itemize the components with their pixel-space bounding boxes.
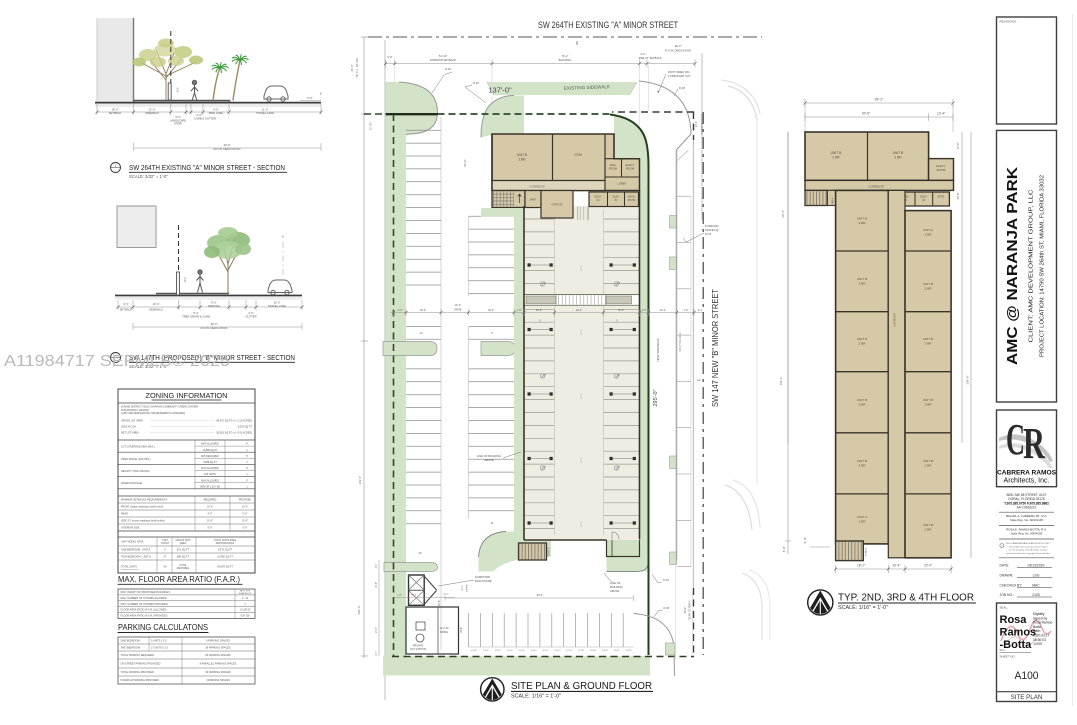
svg-text:ELECT.: ELECT.	[625, 163, 634, 167]
svg-text:MAX ALLOWED: MAX ALLOWED	[201, 443, 219, 446]
svg-text:10'-0": 10'-0"	[242, 520, 248, 523]
svg-text:MAX. NUMBER OF STORIES PROVIDE: MAX. NUMBER OF STORIES PROVIDED	[121, 603, 168, 606]
svg-text:60'-8": 60'-8"	[862, 112, 870, 116]
svg-text:R 20': R 20'	[445, 67, 452, 71]
svg-text:UNIT B: UNIT B	[923, 459, 933, 463]
svg-text:GYM: GYM	[574, 153, 582, 157]
svg-text:6'-0": 6'-0"	[123, 302, 128, 306]
svg-text:CORRIDOR: CORRIDOR	[868, 184, 883, 188]
svg-text:2 BR: 2 BR	[925, 463, 933, 467]
svg-text:22'-4": 22'-4"	[581, 457, 583, 463]
svg-text:SIDEWALK: SIDEWALK	[149, 308, 163, 312]
svg-text:63 PARKING SPACES: 63 PARKING SPACES	[205, 654, 231, 657]
svg-text:ROOM: ROOM	[628, 199, 636, 202]
svg-text:79'-2": 79'-2"	[562, 54, 569, 58]
svg-text:22'-0": 22'-0"	[438, 600, 441, 606]
svg-text:22'-0": 22'-0"	[576, 309, 582, 312]
svg-text:UNIT B: UNIT B	[857, 459, 867, 463]
svg-text:2100: 2100	[1032, 593, 1040, 597]
svg-text:11'-10": 11'-10"	[369, 122, 373, 130]
svg-text:13'-8": 13'-8"	[956, 142, 960, 149]
svg-text:TOTAL PARKING PROVIDED: TOTAL PARKING PROVIDED	[121, 671, 154, 674]
svg-text:7'-4": 7'-4"	[397, 595, 402, 597]
svg-text:Ramos: Ramos	[1000, 627, 1037, 639]
svg-text:FDOT INDEX 304: FDOT INDEX 304	[668, 70, 690, 74]
svg-text:DATE:: DATE:	[1000, 564, 1010, 568]
svg-text:A11984717 SEFMLS© 2025: A11984717 SEFMLS© 2025	[4, 353, 230, 370]
svg-text:BUILDING: BUILDING	[559, 58, 572, 62]
svg-text:REAR SETBACK: REAR SETBACK	[689, 600, 692, 620]
svg-text:CABRERA RAMOS: CABRERA RAMOS	[997, 470, 1057, 477]
svg-text:22'-8": 22'-8"	[618, 309, 624, 312]
svg-text:168'-8": 168'-8"	[966, 375, 970, 384]
svg-text:2 BR: 2 BR	[925, 527, 933, 531]
svg-text:UNIT A: UNIT A	[923, 228, 934, 232]
svg-text:are the property of the Archit: are the property of the Architect and ar…	[1009, 549, 1048, 552]
svg-text:22'-4": 22'-4"	[581, 329, 583, 335]
svg-text:FRONT (major roadways build-to: FRONT (major roadways build-to-line)	[121, 506, 163, 509]
svg-text:SEAL:: SEAL:	[1000, 606, 1009, 610]
svg-text:STOR.: STOR.	[937, 196, 945, 199]
svg-text:SITE PLAN & GROUND FLOOR: SITE PLAN & GROUND FLOOR	[511, 681, 652, 692]
svg-text:FLOOR AREA RATIO (F.A.R.) PROV: FLOOR AREA RATIO (F.A.R.) PROVIDED	[121, 615, 168, 618]
svg-text:2 BR: 2 BR	[859, 463, 867, 467]
svg-text:LOBBY: LOBBY	[617, 182, 626, 186]
svg-text:LESS R.O.W.: LESS R.O.W.	[121, 426, 136, 429]
svg-text:2 BR: 2 BR	[859, 221, 867, 225]
svg-text:10'-4": 10'-4"	[660, 309, 666, 312]
svg-text:16'-4": 16'-4"	[376, 582, 378, 588]
svg-text:10'-4": 10'-4"	[153, 302, 160, 306]
svg-text:10'-0": 10'-0"	[242, 506, 248, 509]
svg-text:UNIT B: UNIT B	[857, 398, 867, 402]
svg-text:BIKE LANE: BIKE LANE	[209, 111, 223, 115]
svg-text:ON-STREET PARKING PROVIDED: ON-STREET PARKING PROVIDED	[121, 663, 161, 666]
svg-text:36'-4": 36'-4"	[781, 210, 785, 218]
svg-text:UNIT B: UNIT B	[517, 153, 527, 157]
svg-text:5'-0": 5'-0"	[208, 527, 213, 530]
svg-text:protected under the Copyright: protected under the Copyright Protection…	[1006, 552, 1049, 555]
svg-text:8'-10": 8'-10"	[803, 537, 807, 544]
svg-text:OPEN SPACE (10% MIN.): OPEN SPACE (10% MIN.)	[121, 458, 151, 461]
svg-text:1'-0": 1'-0"	[517, 309, 522, 312]
svg-text:2 BR: 2 BR	[859, 341, 867, 345]
svg-text:24'-8": 24'-8"	[705, 232, 712, 236]
svg-text:10'-0": 10'-0"	[207, 520, 213, 523]
svg-text:TWO BEDROOM - UNIT B: TWO BEDROOM - UNIT B	[121, 556, 151, 559]
svg-text:3,959 SQ.FT: 3,959 SQ.FT	[203, 461, 217, 464]
svg-text:9,079 SQ.FT: 9,079 SQ.FT	[238, 426, 253, 429]
svg-text:SCALE: 1/16" = 1'-0": SCALE: 1/16" = 1'-0"	[511, 693, 561, 699]
svg-text:63 PARKING SPACES: 63 PARKING SPACES	[205, 671, 231, 674]
svg-text:ROOM: ROOM	[609, 167, 618, 171]
svg-text:STAIR A: STAIR A	[831, 197, 834, 206]
svg-text:LSG: LSG	[1033, 573, 1040, 577]
svg-text:This Single Unit Drawings of t: This Single Unit Drawings of this Projec…	[1009, 545, 1048, 548]
svg-text:MAX. NUMBER OF STORIES ALLOWED: MAX. NUMBER OF STORIES ALLOWED	[121, 597, 167, 600]
svg-text:11'-0": 11'-0"	[262, 108, 269, 112]
svg-text:JOB NO.:: JOB NO.:	[1000, 593, 1015, 597]
svg-text:JANIT.: JANIT.	[529, 198, 537, 202]
svg-text:27 UNITS X 1.5: 27 UNITS X 1.5	[151, 647, 168, 650]
svg-text:Rosa: Rosa	[1000, 614, 1028, 626]
svg-text:UNIT B: UNIT B	[923, 398, 933, 402]
svg-text:ABOVE: ABOVE	[610, 589, 619, 593]
svg-text:93'-4": 93'-4"	[537, 593, 544, 597]
svg-text:DRIVE: DRIVE	[454, 308, 462, 311]
svg-text:8 PARKING: 8 PARKING	[705, 224, 719, 228]
svg-text:MAX. HEIGHT OF PROPOSED BUILDI: MAX. HEIGHT OF PROPOSED BUILDINGS	[121, 591, 171, 594]
svg-text:Architects, Inc.: Architects, Inc.	[1004, 478, 1050, 485]
svg-text:13'-4": 13'-4"	[937, 112, 945, 116]
svg-text:ZONING INFORMATION: ZONING INFORMATION	[146, 391, 228, 400]
svg-text:23'-0": 23'-0"	[376, 627, 378, 633]
svg-text:DRIVE: DRIVE	[440, 630, 448, 634]
svg-text:CURB & GUTTER: CURB & GUTTER	[194, 116, 216, 120]
svg-text:MINIMUM SETBACKS REQUIREMENTS: MINIMUM SETBACKS REQUIREMENTS	[121, 499, 167, 502]
svg-text:10'-0": 10'-0"	[207, 506, 213, 509]
svg-text:LINE OF: LINE OF	[610, 581, 621, 585]
svg-text:119'-4": 119'-4"	[358, 475, 362, 484]
svg-text:LOT COVERAGE (80% MAX.): LOT COVERAGE (80% MAX.)	[121, 446, 155, 449]
svg-text:4'-0": 4'-0"	[398, 309, 403, 312]
svg-text:34,678 SQ.FT: 34,678 SQ.FT	[217, 566, 233, 569]
svg-text:GROSS LOT AREA: GROSS LOT AREA	[121, 420, 143, 423]
svg-text:PROJECT LOCATION: 14790 SW 264: PROJECT LOCATION: 14790 SW 264th ST, MIA…	[1040, 175, 1046, 357]
svg-text:BUILDING: BUILDING	[610, 585, 623, 589]
svg-text:22'-4": 22'-4"	[581, 265, 583, 271]
svg-text:R: R	[1023, 419, 1046, 468]
svg-text:INTERIOR SIDE: INTERIOR SIDE	[121, 527, 140, 530]
svg-text:GUTTER: GUTTER	[245, 314, 256, 318]
svg-text:AREA: AREA	[180, 542, 187, 545]
svg-text:DENSITY (INCLUSIONS): DENSITY (INCLUSIONS)	[121, 470, 150, 473]
svg-text:ROOM: ROOM	[937, 168, 946, 172]
svg-text:LINE OF BUILDING: LINE OF BUILDING	[477, 454, 501, 458]
svg-text:STRIP: STRIP	[174, 122, 182, 126]
svg-text:ABOVE: ABOVE	[484, 458, 493, 462]
svg-text:4 PARKING SPACES: 4 PARKING SPACES	[206, 679, 230, 682]
svg-text:SW 264TH EXISTING "A" MINOR ST: SW 264TH EXISTING "A" MINOR STREET - SEC…	[129, 163, 285, 172]
svg-text:ℓ: ℓ	[576, 41, 578, 47]
svg-text:119'-4": 119'-4"	[779, 377, 783, 385]
svg-text:UNIT B: UNIT B	[893, 151, 905, 155]
svg-text:NEW SIDEWALK: NEW SIDEWALK	[656, 338, 660, 361]
svg-text:38'-0": 38'-0"	[675, 44, 682, 48]
svg-text:SPEED PACKAGE: SPEED PACKAGE	[121, 482, 142, 485]
svg-text:22'-0": 22'-0"	[462, 585, 464, 591]
svg-text:A100: A100	[1015, 670, 1039, 682]
svg-text:612 SQ.FT: 612 SQ.FT	[177, 549, 190, 552]
svg-text:TRAVEL LANE: TRAVEL LANE	[256, 111, 274, 115]
svg-text:2 BR: 2 BR	[859, 402, 867, 406]
svg-text:REQUIRED: REQUIRED	[204, 499, 217, 502]
svg-text:8 PARALLEL PARKING SPACES: 8 PARALLEL PARKING SPACES	[200, 663, 237, 666]
svg-text:MAC: MAC	[1032, 583, 1040, 587]
svg-text:PARKING CALCULATONS: PARKING CALCULATONS	[118, 623, 208, 632]
svg-text:OFFICE: OFFICE	[552, 203, 563, 207]
svg-text:4'-0": 4'-0"	[640, 52, 645, 56]
svg-text:UNIT B: UNIT B	[857, 277, 867, 281]
svg-text:16'-0": 16'-0"	[443, 594, 449, 596]
svg-text:59% OR 1.01+ SB: 59% OR 1.01+ SB	[200, 485, 220, 488]
svg-text:2 BR: 2 BR	[832, 156, 840, 160]
svg-text:R 30': R 30'	[664, 606, 670, 610]
svg-text:1.0 (BF 5): 1.0 (BF 5)	[240, 609, 251, 612]
svg-text:TOTAL PARKING REQUIRED: TOTAL PARKING REQUIRED	[121, 654, 155, 657]
svg-text:48,670 SQ.FT (+/- 1.12 ACRES): 48,670 SQ.FT (+/- 1.12 ACRES)	[216, 420, 252, 423]
svg-text:R.O.W. DEDICATION: R.O.W. DEDICATION	[665, 49, 691, 53]
svg-text:1 BR: 1 BR	[925, 232, 933, 236]
svg-text:UNIT A: UNIT A	[857, 515, 868, 519]
svg-text:TOTAL UNITS: TOTAL UNITS	[121, 566, 137, 569]
svg-text:SIDE ST. (minor roadways build: SIDE ST. (minor roadways build-to-line)	[121, 520, 165, 523]
svg-text:5,672 SQ.FT: 5,672 SQ.FT	[218, 549, 233, 552]
svg-text:2 BR: 2 BR	[925, 341, 933, 345]
svg-text:SW 147 NEW "B" MINOR STREET: SW 147 NEW "B" MINOR STREET	[710, 289, 720, 407]
svg-text:SHEET NO.: SHEET NO.	[1000, 655, 1016, 659]
svg-text:PROVIDED: PROVIDED	[239, 499, 252, 502]
svg-text:AA C0616221: AA C0616221	[1017, 506, 1037, 510]
svg-text:LAND USE DESIGNATION: RM (RESI: LAND USE DESIGNATION: RM (RESIDENTIAL MO…	[121, 412, 185, 415]
svg-text:2 BR: 2 BR	[925, 286, 933, 290]
svg-text:33'-8": 33'-8"	[956, 192, 960, 199]
svg-text:2 BR: 2 BR	[894, 156, 902, 160]
svg-text:DRIVE: DRIVE	[467, 584, 469, 591]
svg-text:40'-0": 40'-0"	[350, 64, 354, 71]
svg-text:SITE PLAN: SITE PLAN	[1011, 694, 1043, 701]
svg-text:18'-0": 18'-0"	[420, 309, 426, 312]
svg-text:2020 CABRERA RAMOS ARCHITECTS,: 2020 CABRERA RAMOS ARCHITECTS, INC.	[1006, 542, 1051, 545]
svg-text:W.O.:: W.O.:	[1000, 648, 1007, 652]
svg-text:2 BR: 2 BR	[518, 158, 526, 162]
svg-text:UNIT B: UNIT B	[923, 282, 933, 286]
svg-text:2 BR: 2 BR	[925, 402, 933, 406]
svg-text:REAR: REAR	[121, 513, 128, 516]
svg-text:5'-0": 5'-0"	[387, 55, 392, 59]
svg-text:10 X 20: 10 X 20	[440, 626, 449, 630]
svg-text:51'-10": 51'-10"	[439, 54, 447, 58]
svg-text:31,990 SQ.FT: 31,990 SQ.FT	[217, 556, 233, 559]
svg-text:3'-4": 3'-4"	[698, 309, 703, 312]
svg-text:MIN REQUIRED: MIN REQUIRED	[201, 455, 219, 458]
svg-text:AMC @ NARANJA PARK: AMC @ NARANJA PARK	[1005, 166, 1021, 365]
svg-text:TRAVEL LANE: TRAVEL LANE	[268, 304, 286, 308]
svg-text:12'-0": 12'-0"	[149, 108, 156, 112]
svg-text:4'-0": 4'-0"	[642, 309, 647, 312]
svg-text:State Reg. No. AR94206: State Reg. No. AR94206	[1011, 531, 1043, 535]
svg-text:22'-4": 22'-4"	[581, 393, 583, 399]
svg-text:20'-4": 20'-4"	[892, 564, 900, 568]
svg-text:99'-2": 99'-2"	[875, 98, 884, 102]
svg-text:MAIL: MAIL	[610, 163, 617, 167]
svg-text:39,591 SQ.FT (+/- 0.91 ACRES): 39,591 SQ.FT (+/- 0.91 ACRES)	[216, 432, 252, 435]
svg-text:125 UNITS: 125 UNITS	[204, 473, 216, 476]
svg-text:22'-0": 22'-0"	[455, 304, 461, 307]
svg-text:SETBACK: SETBACK	[109, 111, 122, 115]
svg-text:CHECKED BY:: CHECKED BY:	[1000, 584, 1023, 588]
svg-text:PER BUILDINGS: PER BUILDINGS	[216, 542, 235, 545]
svg-text:CLIENT: AMC DEVELOPMENT GROUP,: CLIENT: AMC DEVELOPMENT GROUP, LLC	[1029, 190, 1035, 343]
svg-text:18'-4": 18'-4"	[411, 595, 417, 597]
svg-text:5'-0": 5'-0"	[208, 513, 213, 516]
svg-text:18'-8": 18'-8"	[460, 627, 463, 633]
svg-text:DRAWN:: DRAWN:	[1000, 574, 1014, 578]
svg-text:SCALE: 1/16" = 1'-0": SCALE: 1/16" = 1'-0"	[838, 605, 888, 611]
svg-text:HANDICAP PARKING PROVIDED: HANDICAP PARKING PROVIDED	[121, 679, 160, 682]
svg-text:SIDEWALK: SIDEWALK	[145, 111, 159, 115]
svg-text:COUNT: COUNT	[161, 542, 170, 545]
svg-text:-04'00': -04'00'	[1033, 642, 1043, 646]
svg-text:36 PARKING SPACES: 36 PARKING SPACES	[205, 647, 231, 650]
svg-text:18'-2": 18'-2"	[857, 564, 865, 568]
svg-text:6 PARKING SPACES: 6 PARKING SPACES	[206, 640, 230, 643]
svg-text:3'-0": 3'-0"	[376, 564, 378, 569]
svg-text:898 SQ.FT: 898 SQ.FT	[177, 556, 190, 559]
svg-text:NET LOT AREA: NET LOT AREA	[121, 432, 139, 435]
svg-text:295'-4": 295'-4"	[357, 605, 361, 614]
svg-text:R.O.W. DEDICATION: R.O.W. DEDICATION	[201, 326, 228, 330]
svg-text:CURB RAMP CUT: CURB RAMP CUT	[668, 74, 691, 78]
svg-text:TO C.L. OF RD: TO C.L. OF RD	[355, 58, 359, 77]
svg-text:TYP. 2ND, 3RD & 4TH FLOOR: TYP. 2ND, 3RD & 4TH FLOOR	[838, 592, 974, 603]
svg-text:MAX. FLOOR AREA RATIO (F.A.R.): MAX. FLOOR AREA RATIO (F.A.R.)	[118, 575, 240, 584]
svg-text:62'-0": 62'-0"	[684, 607, 687, 613]
svg-text:SW 264TH EXISTING "A" MINOR ST: SW 264TH EXISTING "A" MINOR STREET	[538, 20, 678, 30]
svg-text:9 UNITS X 1.5: 9 UNITS X 1.5	[151, 640, 167, 643]
svg-text:0.87 (38: 0.87 (38	[241, 615, 250, 618]
svg-text:5'-0": 5'-0"	[243, 527, 248, 530]
svg-text:1'-0": 1'-0"	[376, 652, 378, 657]
svg-text:R 20': R 20'	[663, 578, 669, 582]
svg-text:MAX ALLOWED: MAX ALLOWED	[201, 479, 219, 482]
svg-text:5'-0": 5'-0"	[243, 513, 248, 516]
svg-text:ONE BEDROOM - UNIT A: ONE BEDROOM - UNIT A	[121, 549, 151, 552]
svg-text:REVISIONS:: REVISIONS:	[1000, 20, 1017, 24]
svg-text:295'-0": 295'-0"	[653, 389, 659, 406]
svg-text:13,886 SQ.FT: 13,886 SQ.FT	[202, 449, 218, 452]
svg-text:FLOOR AREA RATIO (F.A.R.) ALLO: FLOOR AREA RATIO (F.A.R.) ALLOWED	[121, 609, 167, 612]
svg-text:15'-0": 15'-0"	[112, 108, 119, 112]
svg-text:3'-6": 3'-6"	[183, 277, 187, 282]
svg-text:10'-0": 10'-0"	[695, 121, 698, 127]
svg-text:SETBACK: SETBACK	[120, 308, 133, 312]
svg-text:R 30': R 30'	[679, 86, 686, 90]
svg-text:SCALE: 3/32" = 1'-0": SCALE: 3/32" = 1'-0"	[129, 174, 168, 179]
svg-text:TWO BEDROOM: TWO BEDROOM	[121, 647, 140, 650]
svg-text:23'-4": 23'-4"	[924, 564, 932, 568]
svg-text:6'-0": 6'-0"	[307, 96, 312, 100]
svg-text:STAIR B: STAIR B	[865, 547, 868, 556]
svg-text:R.O.W. DEDICATION: R.O.W. DEDICATION	[214, 147, 241, 151]
svg-text:3 - 12: 3 - 12	[242, 597, 249, 600]
svg-text:R 20': R 20'	[473, 81, 480, 85]
svg-text:UNIT B: UNIT B	[857, 217, 867, 221]
svg-text:PARKING: PARKING	[208, 304, 220, 308]
svg-text:8'-10": 8'-10"	[783, 546, 786, 552]
svg-text:LIFT STATION: LIFT STATION	[410, 648, 426, 651]
svg-text:ONE BEDROOM: ONE BEDROOM	[121, 640, 140, 643]
svg-text:3'-6": 3'-6"	[176, 87, 180, 92]
svg-text:UNIT B: UNIT B	[923, 337, 933, 341]
svg-text:DUMPSTER: DUMPSTER	[475, 575, 490, 579]
svg-text:SIDE ST. SETBACK: SIDE ST. SETBACK	[638, 56, 662, 60]
svg-text:03/13/2020: 03/13/2020	[1028, 563, 1045, 567]
svg-text:18'-0": 18'-0"	[488, 309, 494, 312]
svg-text:4'-0": 4'-0"	[213, 108, 218, 112]
svg-text:ROOM: ROOM	[626, 167, 635, 171]
svg-text:-: -	[115, 169, 116, 173]
svg-text:UNIT B: UNIT B	[857, 337, 867, 341]
svg-text:7'-0": 7'-0"	[684, 309, 689, 312]
svg-text:UNIT MODEL DATA: UNIT MODEL DATA	[121, 541, 144, 544]
svg-text:137'-0": 137'-0"	[488, 86, 512, 95]
svg-text:2 BR: 2 BR	[859, 281, 867, 285]
svg-text:1 BR: 1 BR	[859, 519, 867, 523]
svg-text:UNIT B: UNIT B	[923, 523, 933, 527]
svg-text:ENCLOSURE: ENCLOSURE	[475, 579, 492, 583]
svg-text:RENTABLE: RENTABLE	[177, 567, 190, 570]
svg-text:INTERIOR SETBACK: INTERIOR SETBACK	[430, 58, 456, 62]
svg-text:State Reg. No. AR101135: State Reg. No. AR101135	[1010, 518, 1043, 522]
svg-text:UNIT B: UNIT B	[831, 151, 843, 155]
svg-text:TREE GRATE & CURB: TREE GRATE & CURB	[182, 314, 210, 318]
svg-text:22'-4": 22'-4"	[581, 521, 583, 527]
svg-text:SPACES @: SPACES @	[705, 228, 719, 232]
svg-text:CORRIDOR: CORRIDOR	[894, 313, 897, 327]
svg-text:MAX ALLOWED: MAX ALLOWED	[201, 467, 219, 470]
svg-text:18'-8": 18'-8"	[536, 309, 542, 312]
svg-text:CORRIDOR: CORRIDOR	[529, 184, 544, 188]
svg-text:STAIR B: STAIR B	[548, 547, 551, 557]
svg-text:34'-10": 34'-10"	[464, 159, 467, 167]
